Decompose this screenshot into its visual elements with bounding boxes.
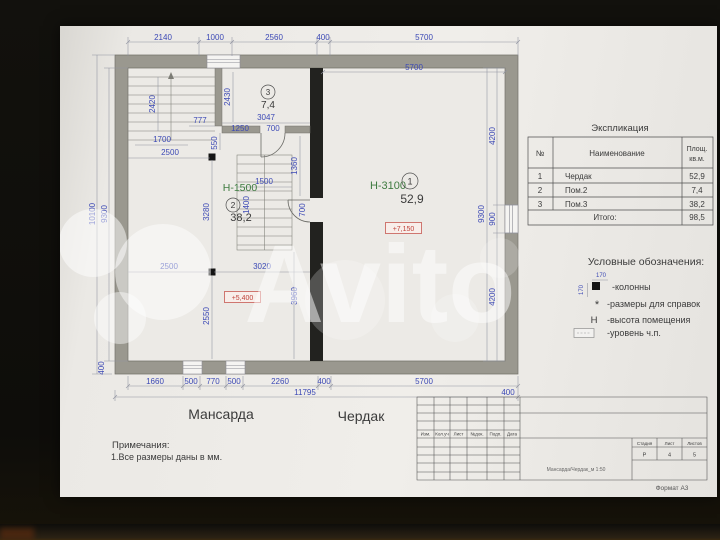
stamp-stage-value: Р bbox=[643, 453, 647, 459]
dim-label: 550 bbox=[210, 136, 219, 150]
dim-label: 2260 bbox=[271, 377, 289, 386]
table-title: Экспликация bbox=[591, 123, 648, 134]
row2-name: Пом.2 bbox=[565, 186, 588, 195]
dim-label: 1000 bbox=[206, 33, 224, 42]
dim-label: 1250 bbox=[231, 124, 249, 133]
dim-label: 11795 bbox=[294, 388, 316, 397]
legend-column-dim-left: 170 bbox=[579, 284, 585, 295]
asterisk-symbol: * bbox=[595, 299, 600, 311]
stamp-doc-title: Мансарда/Чердак_м 1:50 bbox=[547, 467, 606, 473]
legend-column-dim-top: 170 bbox=[596, 273, 607, 279]
stamp-sheet-value: 4 bbox=[668, 453, 671, 459]
dim-label: 777 bbox=[193, 116, 207, 125]
room3-wall-right bbox=[285, 126, 310, 133]
dim-label: 700 bbox=[266, 124, 280, 133]
dim-label: 400 bbox=[316, 33, 330, 42]
table-row: 1 Чердак 52,9 bbox=[538, 172, 706, 181]
col-header-num: № bbox=[536, 149, 545, 158]
room1-area: 52,9 bbox=[400, 192, 424, 206]
col-header-area2: кв.м. bbox=[689, 156, 705, 163]
table-total-value: 98,5 bbox=[689, 213, 705, 222]
title-block: Изм. Кол.уч Лист №док. Подп. Дата Стадия… bbox=[417, 397, 707, 492]
window-bottom-2 bbox=[226, 361, 245, 374]
table-row: 2 Пом.2 7,4 bbox=[538, 186, 703, 195]
dim-label: 1660 bbox=[146, 377, 164, 386]
dim-label: 2140 bbox=[154, 33, 172, 42]
dim-label: 3047 bbox=[257, 113, 275, 122]
watermark-text: Avito bbox=[245, 223, 516, 346]
column-symbol bbox=[592, 282, 600, 290]
dim-label: 500 bbox=[184, 377, 198, 386]
table-total-label: Итого: bbox=[593, 213, 616, 222]
legend-item-columns: -колонны bbox=[612, 282, 651, 292]
dim-label: 1360 bbox=[290, 157, 299, 175]
stamp-format: Формат А3 bbox=[656, 485, 689, 492]
dim-label: 2430 bbox=[223, 88, 232, 106]
row2-area: 7,4 bbox=[691, 186, 703, 195]
dim-label: 2500 bbox=[161, 148, 179, 157]
stamp-header: Кол.уч bbox=[435, 432, 449, 437]
caption-cherdak: Чердак bbox=[338, 408, 386, 424]
dim-label: 500 bbox=[227, 377, 241, 386]
desk-edge bbox=[0, 524, 720, 540]
room3-number: 3 bbox=[266, 88, 271, 97]
window-top bbox=[207, 55, 240, 68]
dim-label: 1500 bbox=[255, 177, 273, 186]
dim-label: 2420 bbox=[148, 95, 157, 113]
dim-label: 5700 bbox=[415, 377, 433, 386]
room1-height: Н-3100 bbox=[370, 180, 406, 192]
col-header-area1: Площ. bbox=[687, 146, 708, 153]
dim-label: 400 bbox=[97, 361, 106, 375]
dim-label: 400 bbox=[501, 388, 515, 397]
stamp-header: Дата bbox=[507, 432, 517, 437]
dim-label: 770 bbox=[206, 377, 220, 386]
row1-name: Чердак bbox=[565, 172, 592, 181]
floor-plan-drawing: 2140 1000 2560 400 5700 5700 1660 500 77… bbox=[60, 26, 717, 497]
dim-label: 2550 bbox=[202, 307, 211, 325]
stamp-header: Изм. bbox=[421, 432, 431, 437]
stamp-sheets-label: Листов bbox=[687, 441, 702, 446]
dim-label: 700 bbox=[298, 203, 307, 217]
caption-mansarda: Мансарда bbox=[188, 406, 254, 422]
table-row: 3 Пом.3 38,2 bbox=[538, 200, 706, 209]
stamp-header: №док. bbox=[470, 432, 483, 437]
room3-area: 7,4 bbox=[261, 100, 275, 111]
dim-label: 3280 bbox=[202, 203, 211, 221]
row2-num: 2 bbox=[538, 186, 543, 195]
room2-number: 2 bbox=[231, 200, 236, 210]
row3-name: Пом.3 bbox=[565, 200, 588, 209]
notes-line1: 1.Все размеры даны в мм. bbox=[111, 452, 222, 462]
dim-label: 4200 bbox=[488, 127, 497, 145]
notes-title: Примечания: bbox=[112, 440, 170, 451]
stamp-header: Подп. bbox=[490, 432, 502, 437]
row3-area: 38,2 bbox=[689, 200, 705, 209]
column-1 bbox=[209, 154, 216, 161]
dim-label: 2560 bbox=[265, 33, 283, 42]
legend-item-level: -уровень ч.п. bbox=[607, 328, 661, 338]
room1-number: 1 bbox=[407, 177, 412, 187]
stamp-header: Лист bbox=[454, 432, 464, 437]
stair-wall bbox=[215, 68, 222, 126]
photo-of-screen: 2140 1000 2560 400 5700 5700 1660 500 77… bbox=[0, 0, 720, 540]
dim-label: 1700 bbox=[153, 135, 171, 144]
watermark-circle bbox=[94, 292, 146, 344]
drawing-sheet: 2140 1000 2560 400 5700 5700 1660 500 77… bbox=[60, 26, 717, 497]
legend-item-ref-dims: -размеры для справок bbox=[607, 299, 700, 309]
window-bottom-1 bbox=[183, 361, 202, 374]
legend-item-height: -высота помещения bbox=[607, 315, 691, 325]
row3-num: 3 bbox=[538, 200, 543, 209]
stamp-stage-label: Стадия bbox=[637, 441, 653, 446]
col-header-name: Наименование bbox=[589, 149, 645, 158]
height-symbol: Н bbox=[591, 315, 598, 326]
stamp-sheets-value: 5 bbox=[693, 453, 696, 459]
legend-title: Условные обозначения: bbox=[588, 256, 704, 268]
dim-label: 5700 bbox=[415, 33, 433, 42]
explication-table: Экспликация № Наименование Площ. кв.м. 1… bbox=[528, 123, 713, 225]
stamp-sheet-label: Лист bbox=[665, 441, 675, 446]
row1-num: 1 bbox=[538, 172, 543, 181]
desk-reflection bbox=[0, 528, 34, 540]
legend: Условные обозначения: 170 170 -колонны *… bbox=[574, 256, 704, 338]
room2-height: Н-1500 bbox=[223, 182, 258, 194]
row1-area: 52,9 bbox=[689, 172, 705, 181]
middle-wall-upper bbox=[310, 68, 323, 198]
notes: Примечания: 1.Все размеры даны в мм. bbox=[111, 440, 222, 462]
dim-label: 5700 bbox=[405, 63, 423, 72]
dim-label: 400 bbox=[317, 377, 331, 386]
dim-label: 9300 bbox=[477, 205, 486, 223]
